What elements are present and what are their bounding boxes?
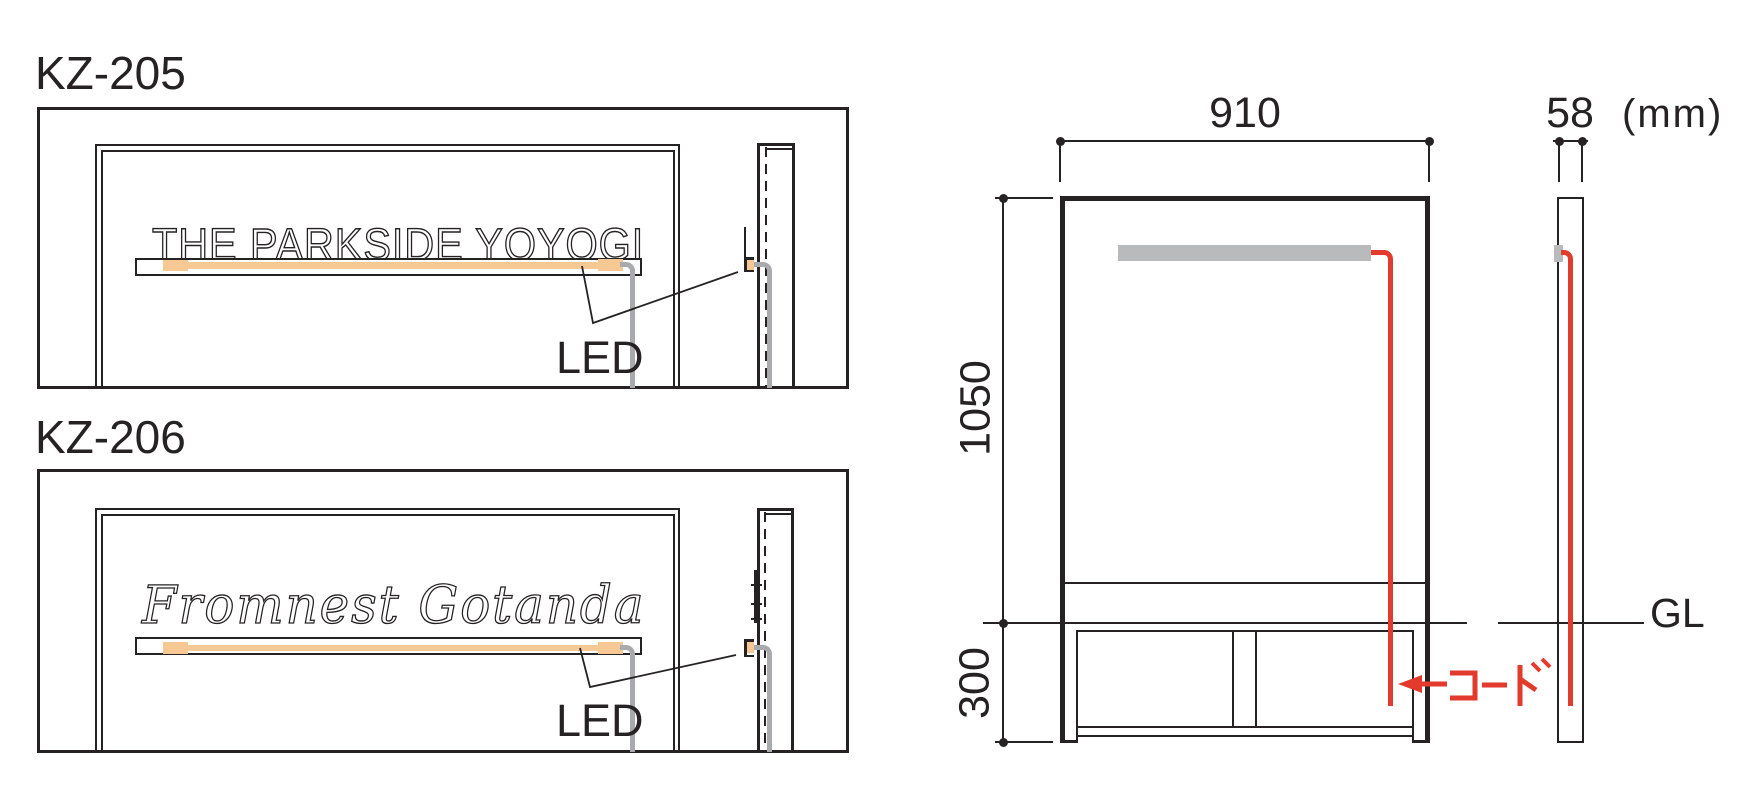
cord-arrow-icon <box>1398 675 1422 693</box>
dim-dot <box>1555 137 1564 146</box>
dim-underground-top-line <box>1077 630 1414 632</box>
cord-callout-label <box>1395 655 1555 710</box>
dim-front-red-cord <box>1371 250 1393 706</box>
depth-dim-ext-right <box>1581 140 1583 182</box>
depth-dim-value: 58 <box>1525 92 1615 135</box>
height-dim-line <box>1002 198 1004 743</box>
dim-dot <box>999 194 1008 203</box>
dim-side-red-cord <box>1561 250 1573 706</box>
dim-left-leg-foot <box>1060 740 1078 743</box>
dim-dot <box>1056 137 1065 146</box>
width-dim-ext-right <box>1428 140 1430 182</box>
dim-underground-mid-post <box>1255 630 1257 728</box>
dim-underground-bottom-rail <box>1077 735 1414 737</box>
ground-line-label: GL <box>1650 593 1705 634</box>
width-dim-value: 910 <box>1160 92 1330 135</box>
ground-line-left-segment <box>983 622 1467 624</box>
signage-spec-diagram: KZ-205 THE PARKSIDE YOYOGI LED KZ-206 <box>0 0 1752 808</box>
dim-right-leg-foot <box>1412 740 1430 743</box>
dim-underground-mid-post <box>1232 630 1234 728</box>
unit-label: (mm) <box>1622 94 1723 134</box>
dim-dot <box>1578 137 1587 146</box>
depth-dim-ext-left <box>1558 140 1560 182</box>
dim-dot <box>999 619 1008 628</box>
embed-dim-value: 300 <box>954 647 997 719</box>
dim-led-bar <box>1118 245 1371 261</box>
width-dim-line <box>1060 140 1429 142</box>
height-dim-value: 1050 <box>955 360 998 456</box>
dim-dot <box>1425 137 1434 146</box>
width-dim-ext-left <box>1059 140 1061 182</box>
dim-dot <box>999 738 1008 747</box>
dim-underground-bottom-rail <box>1077 726 1414 728</box>
